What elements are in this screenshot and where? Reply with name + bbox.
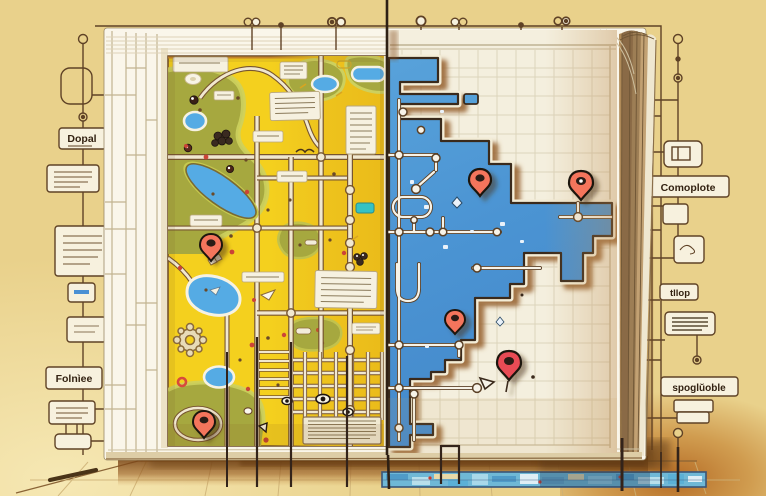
svg-text:tllop: tllop: [670, 288, 690, 299]
svg-text:Folnìee: Folnìee: [56, 373, 93, 385]
svg-text:spoglŭoble: spoglŭoble: [672, 383, 726, 394]
svg-text:Dopal: Dopal: [67, 133, 96, 145]
svg-text:Comoplote: Comoplote: [661, 182, 716, 194]
